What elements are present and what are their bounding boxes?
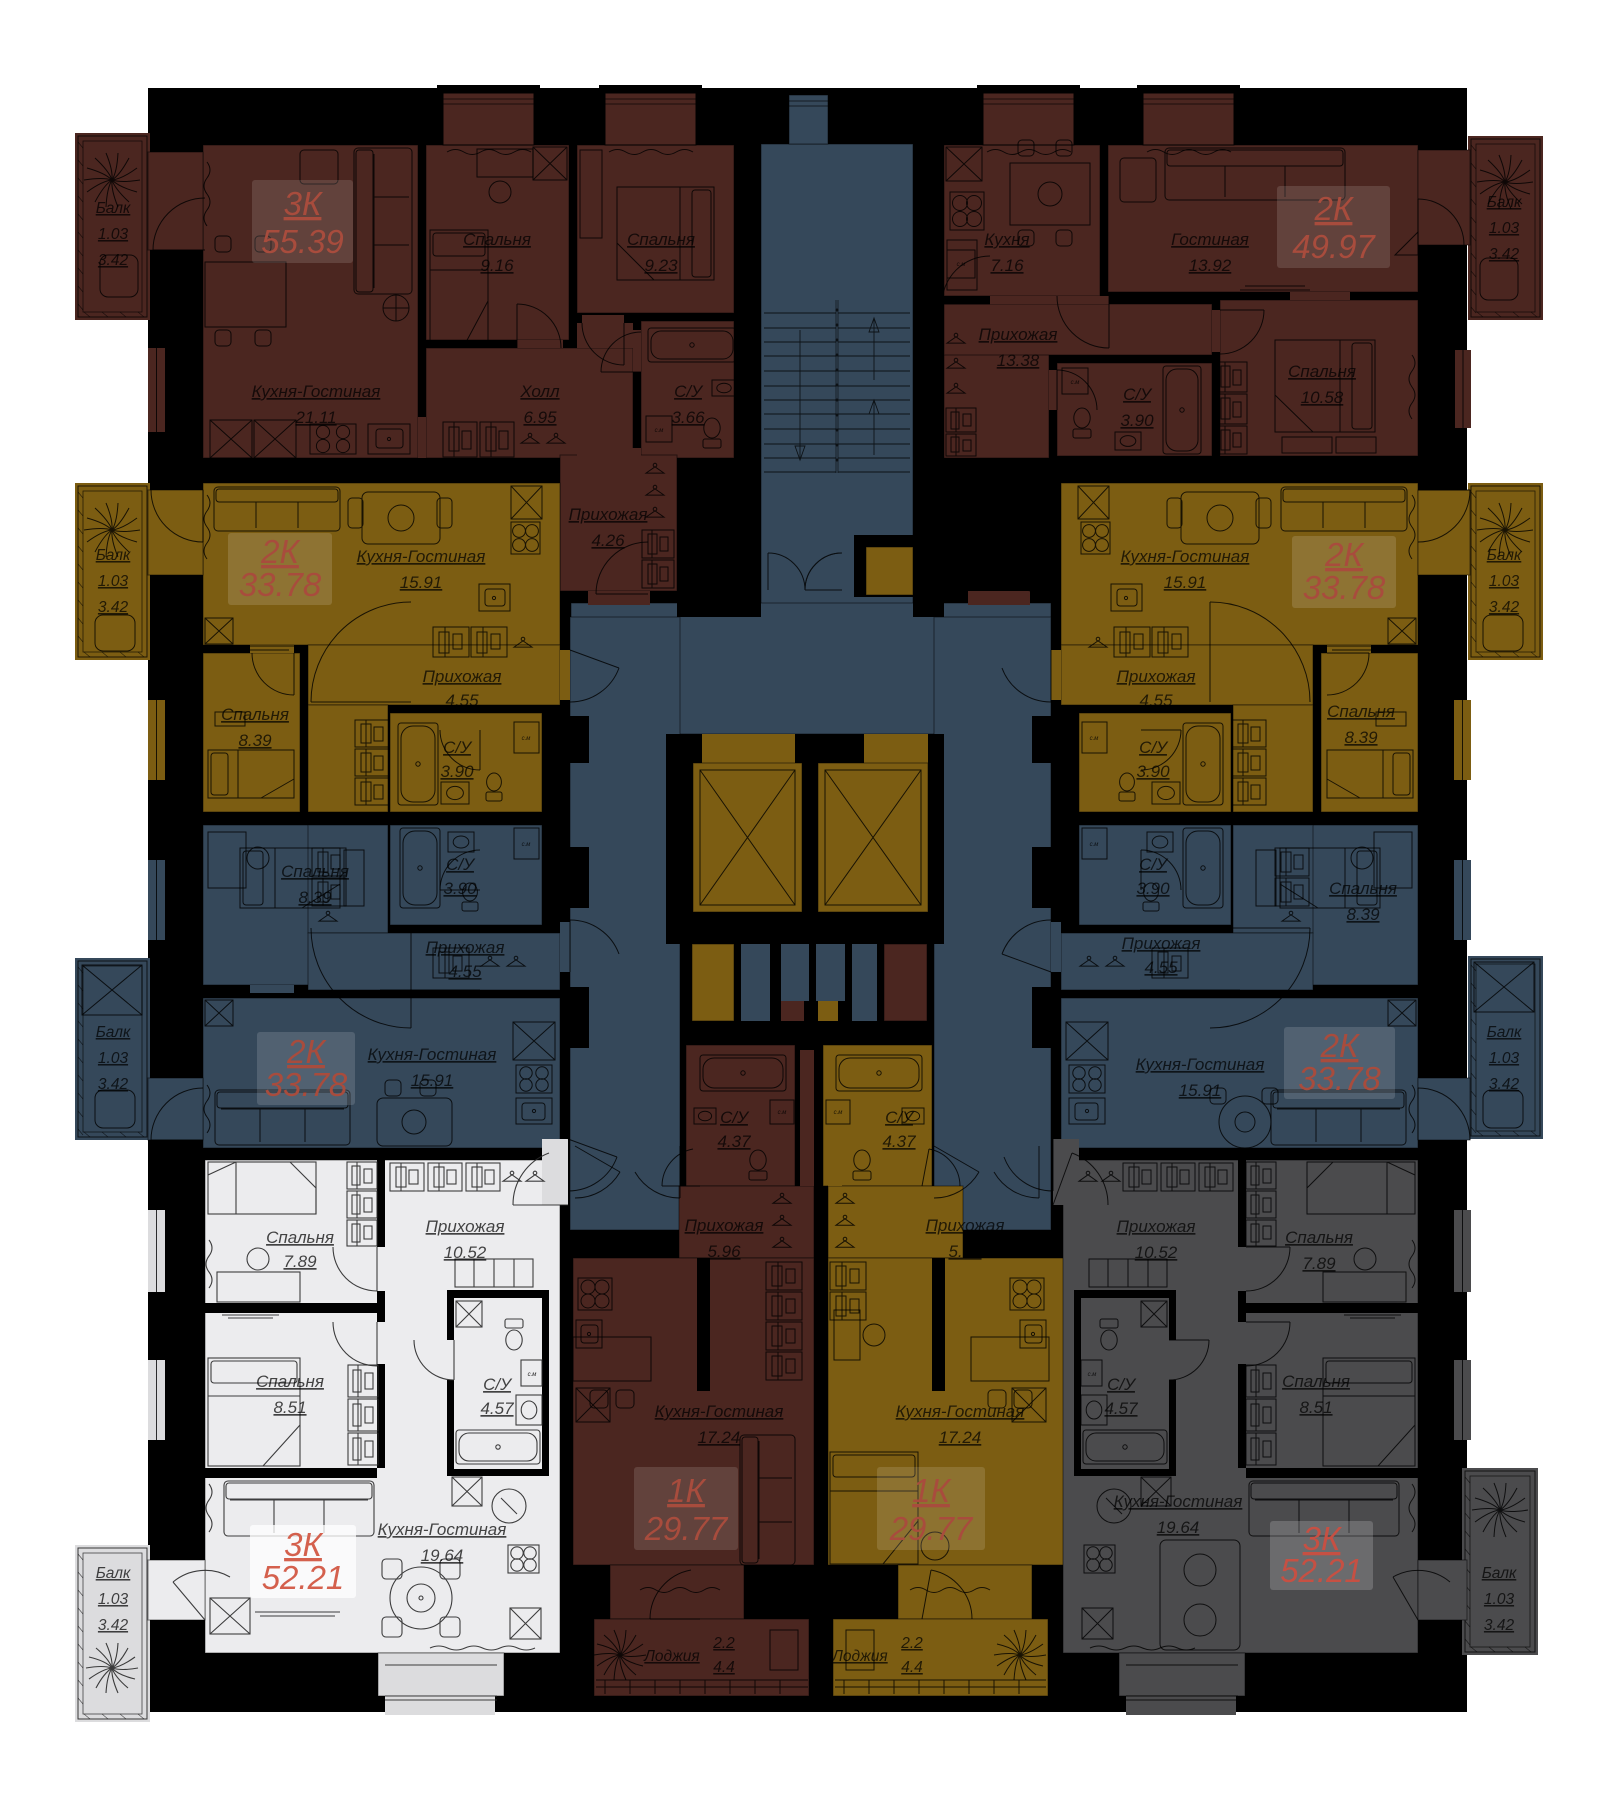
svg-text:55.39: 55.39 — [261, 223, 344, 260]
svg-text:Спальня: Спальня — [281, 862, 349, 881]
svg-text:Прихожая: Прихожая — [979, 325, 1058, 344]
svg-text:2.2: 2.2 — [712, 1635, 735, 1652]
svg-text:4.55: 4.55 — [445, 691, 479, 710]
svg-text:4.55: 4.55 — [1144, 958, 1178, 977]
svg-text:15.91: 15.91 — [411, 1071, 454, 1090]
svg-text:с.м: с.м — [1088, 1372, 1097, 1378]
svg-text:Прихожая: Прихожая — [426, 1217, 505, 1236]
svg-text:С/У: С/У — [443, 738, 473, 757]
svg-text:Спальня: Спальня — [266, 1228, 334, 1247]
svg-text:2К: 2К — [1320, 1027, 1360, 1064]
svg-text:10.52: 10.52 — [444, 1243, 487, 1262]
svg-text:3.90: 3.90 — [440, 762, 474, 781]
svg-text:15.91: 15.91 — [400, 573, 443, 592]
svg-text:с.м: с.м — [522, 842, 531, 848]
svg-text:6.95: 6.95 — [523, 408, 557, 427]
svg-text:Спальня: Спальня — [1327, 702, 1395, 721]
svg-text:с.м: с.м — [1090, 842, 1099, 848]
svg-text:Балк: Балк — [1487, 547, 1522, 564]
svg-text:10.58: 10.58 — [1301, 388, 1344, 407]
svg-text:3.66: 3.66 — [671, 408, 705, 427]
svg-text:8.39: 8.39 — [1344, 728, 1378, 747]
svg-text:5.96: 5.96 — [707, 1242, 741, 1261]
svg-text:33.78: 33.78 — [1298, 1060, 1381, 1097]
svg-text:3.42: 3.42 — [98, 1617, 129, 1634]
svg-text:3.90: 3.90 — [1120, 411, 1154, 430]
svg-text:7.89: 7.89 — [1302, 1254, 1336, 1273]
svg-text:9.23: 9.23 — [644, 256, 678, 275]
svg-text:Кухня-Гостиная: Кухня-Гостиная — [368, 1045, 497, 1064]
svg-text:8.51: 8.51 — [1299, 1398, 1332, 1417]
svg-text:49.97: 49.97 — [1292, 228, 1376, 265]
svg-text:Балк: Балк — [1482, 1565, 1517, 1582]
svg-text:Лоджия: Лоджия — [831, 1648, 887, 1665]
svg-text:С/У: С/У — [1123, 385, 1153, 404]
svg-text:Балк: Балк — [1487, 1024, 1522, 1041]
svg-text:Спальня: Спальня — [221, 705, 289, 724]
svg-text:С/У: С/У — [674, 382, 704, 401]
svg-text:Спальня: Спальня — [256, 1372, 324, 1391]
svg-text:5.96: 5.96 — [948, 1242, 982, 1261]
svg-text:Балк: Балк — [96, 547, 131, 564]
svg-text:1.03: 1.03 — [1489, 573, 1520, 590]
svg-text:с.м: с.м — [1090, 736, 1099, 742]
svg-text:13.38: 13.38 — [997, 351, 1040, 370]
svg-text:Гостиная: Гостиная — [1171, 230, 1249, 249]
svg-text:33.78: 33.78 — [239, 566, 322, 603]
svg-text:7.89: 7.89 — [283, 1252, 317, 1271]
svg-text:Балк: Балк — [96, 200, 131, 217]
svg-text:3К: 3К — [284, 1526, 323, 1563]
svg-text:с.м: с.м — [655, 428, 664, 434]
svg-text:с.м: с.м — [1071, 380, 1080, 386]
svg-text:С/У: С/У — [446, 855, 476, 874]
svg-text:4.37: 4.37 — [882, 1132, 916, 1151]
svg-text:Спальня: Спальня — [627, 230, 695, 249]
svg-text:Балк: Балк — [1487, 194, 1522, 211]
svg-text:3.42: 3.42 — [1484, 1617, 1515, 1634]
svg-text:с.м: с.м — [834, 1110, 843, 1116]
svg-text:С/У: С/У — [1139, 738, 1169, 757]
svg-text:3.90: 3.90 — [1136, 762, 1170, 781]
svg-text:1.03: 1.03 — [1484, 1591, 1515, 1608]
svg-text:С/У: С/У — [885, 1108, 915, 1127]
svg-text:Прихожая: Прихожая — [926, 1216, 1005, 1235]
svg-text:Кухня-Гостиная: Кухня-Гостиная — [1136, 1055, 1265, 1074]
svg-text:с.м: с.м — [522, 736, 531, 742]
svg-text:4.4: 4.4 — [713, 1659, 735, 1676]
svg-text:С/У: С/У — [720, 1108, 750, 1127]
svg-text:Лоджия: Лоджия — [643, 1648, 699, 1665]
svg-text:1.03: 1.03 — [1489, 220, 1520, 237]
svg-text:Кухня-Гостиная: Кухня-Гостиная — [378, 1520, 507, 1539]
svg-text:33.78: 33.78 — [265, 1066, 348, 1103]
svg-text:17.24: 17.24 — [698, 1428, 741, 1447]
svg-text:Прихожая: Прихожая — [426, 938, 505, 957]
svg-text:2К: 2К — [1314, 190, 1354, 227]
svg-text:С/У: С/У — [483, 1375, 513, 1394]
svg-text:Прихожая: Прихожая — [569, 505, 648, 524]
svg-text:с.м: с.м — [528, 1372, 537, 1378]
svg-text:8.51: 8.51 — [273, 1398, 306, 1417]
svg-text:С/У: С/У — [1107, 1375, 1137, 1394]
svg-text:Кухня-Гостиная: Кухня-Гостиная — [655, 1402, 784, 1421]
svg-text:8.39: 8.39 — [298, 888, 332, 907]
svg-text:3.42: 3.42 — [1489, 599, 1520, 616]
svg-text:2К: 2К — [260, 533, 300, 570]
svg-text:4.55: 4.55 — [448, 962, 482, 981]
svg-text:С/У: С/У — [1139, 855, 1169, 874]
svg-text:Прихожая: Прихожая — [423, 667, 502, 686]
svg-text:4.37: 4.37 — [717, 1132, 751, 1151]
svg-text:4.57: 4.57 — [1104, 1399, 1138, 1418]
svg-text:9.16: 9.16 — [480, 256, 514, 275]
svg-text:17.24: 17.24 — [939, 1428, 982, 1447]
svg-text:3.90: 3.90 — [1136, 879, 1170, 898]
svg-text:Прихожая: Прихожая — [685, 1216, 764, 1235]
svg-text:Прихожая: Прихожая — [1122, 934, 1201, 953]
svg-text:Спальня: Спальня — [1282, 1372, 1350, 1391]
svg-text:3.90: 3.90 — [443, 879, 477, 898]
svg-text:33.78: 33.78 — [1303, 569, 1386, 606]
svg-text:4.4: 4.4 — [901, 1659, 923, 1676]
svg-text:Спальня: Спальня — [1285, 1228, 1353, 1247]
svg-text:52.21: 52.21 — [1280, 1552, 1363, 1589]
svg-text:1.03: 1.03 — [98, 226, 129, 243]
svg-text:Кухня-Гостиная: Кухня-Гостиная — [1114, 1492, 1243, 1511]
svg-text:1.03: 1.03 — [98, 1591, 129, 1608]
svg-text:3.42: 3.42 — [98, 252, 129, 269]
svg-text:8.39: 8.39 — [238, 731, 272, 750]
svg-text:Балк: Балк — [96, 1024, 131, 1041]
svg-text:1.03: 1.03 — [1489, 1050, 1520, 1067]
svg-text:3.42: 3.42 — [98, 599, 129, 616]
svg-text:29.77: 29.77 — [644, 1510, 729, 1547]
svg-text:15.91: 15.91 — [1164, 573, 1207, 592]
svg-text:Кухня-Гостиная: Кухня-Гостиная — [252, 382, 381, 401]
svg-text:Спальня: Спальня — [1288, 362, 1356, 381]
svg-text:19.64: 19.64 — [1157, 1518, 1200, 1537]
svg-text:Прихожая: Прихожая — [1117, 667, 1196, 686]
svg-text:52.21: 52.21 — [262, 1559, 345, 1596]
svg-text:2К: 2К — [286, 1033, 326, 1070]
svg-text:1К: 1К — [667, 1472, 706, 1509]
svg-text:Кухня: Кухня — [984, 230, 1029, 249]
svg-text:10.52: 10.52 — [1135, 1243, 1178, 1262]
svg-text:2К: 2К — [1324, 536, 1364, 573]
svg-text:Спальня: Спальня — [1329, 879, 1397, 898]
svg-text:Кухня-Гостиная: Кухня-Гостиная — [1121, 547, 1250, 566]
svg-text:3.42: 3.42 — [1489, 1076, 1520, 1093]
svg-text:Балк: Балк — [96, 1565, 131, 1582]
svg-text:19.64: 19.64 — [421, 1546, 464, 1565]
svg-text:8.39: 8.39 — [1346, 905, 1380, 924]
svg-text:3.42: 3.42 — [1489, 246, 1520, 263]
svg-text:2.2: 2.2 — [900, 1635, 923, 1652]
svg-text:Кухня-Гостиная: Кухня-Гостиная — [896, 1402, 1025, 1421]
svg-text:Прихожая: Прихожая — [1117, 1217, 1196, 1236]
svg-text:3К: 3К — [284, 185, 323, 222]
svg-text:1.03: 1.03 — [98, 1050, 129, 1067]
svg-text:Кухня-Гостиная: Кухня-Гостиная — [357, 547, 486, 566]
svg-text:7.16: 7.16 — [990, 256, 1024, 275]
svg-text:4.57: 4.57 — [480, 1399, 514, 1418]
svg-text:1.03: 1.03 — [98, 573, 129, 590]
svg-text:29.77: 29.77 — [889, 1510, 974, 1547]
svg-text:1К: 1К — [912, 1472, 951, 1509]
svg-text:21.11: 21.11 — [294, 408, 336, 427]
svg-text:4.55: 4.55 — [1139, 691, 1173, 710]
svg-text:4.26: 4.26 — [591, 531, 625, 550]
svg-text:3.42: 3.42 — [98, 1076, 129, 1093]
svg-text:с.м: с.м — [778, 1110, 787, 1116]
svg-text:15.91: 15.91 — [1179, 1081, 1222, 1100]
svg-text:13.92: 13.92 — [1189, 256, 1232, 275]
svg-text:Спальня: Спальня — [463, 230, 531, 249]
svg-text:Холл: Холл — [519, 382, 560, 401]
